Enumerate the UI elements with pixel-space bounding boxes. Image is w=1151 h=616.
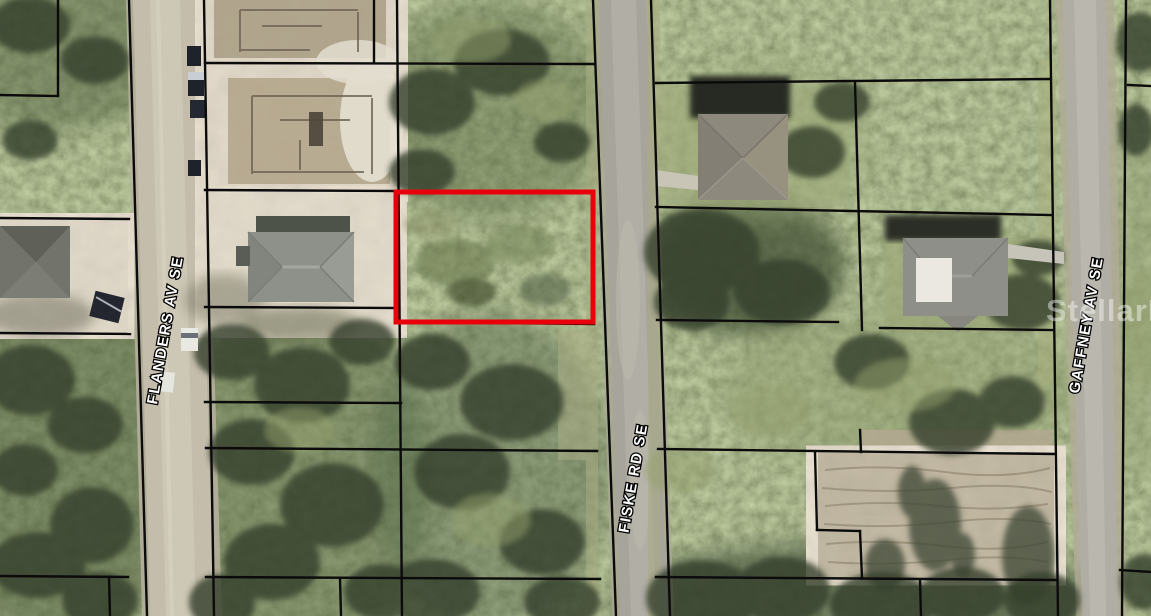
watermark: StellarMLS <box>1046 293 1151 328</box>
aerial-map-canvas: FLANDERS AV SE FISKE RD SE GAFFNEY AV SE… <box>0 0 1151 616</box>
aerial-map: FLANDERS AV SE FISKE RD SE GAFFNEY AV SE… <box>0 0 1151 616</box>
white-van <box>181 328 198 351</box>
carport-roof <box>916 258 952 302</box>
